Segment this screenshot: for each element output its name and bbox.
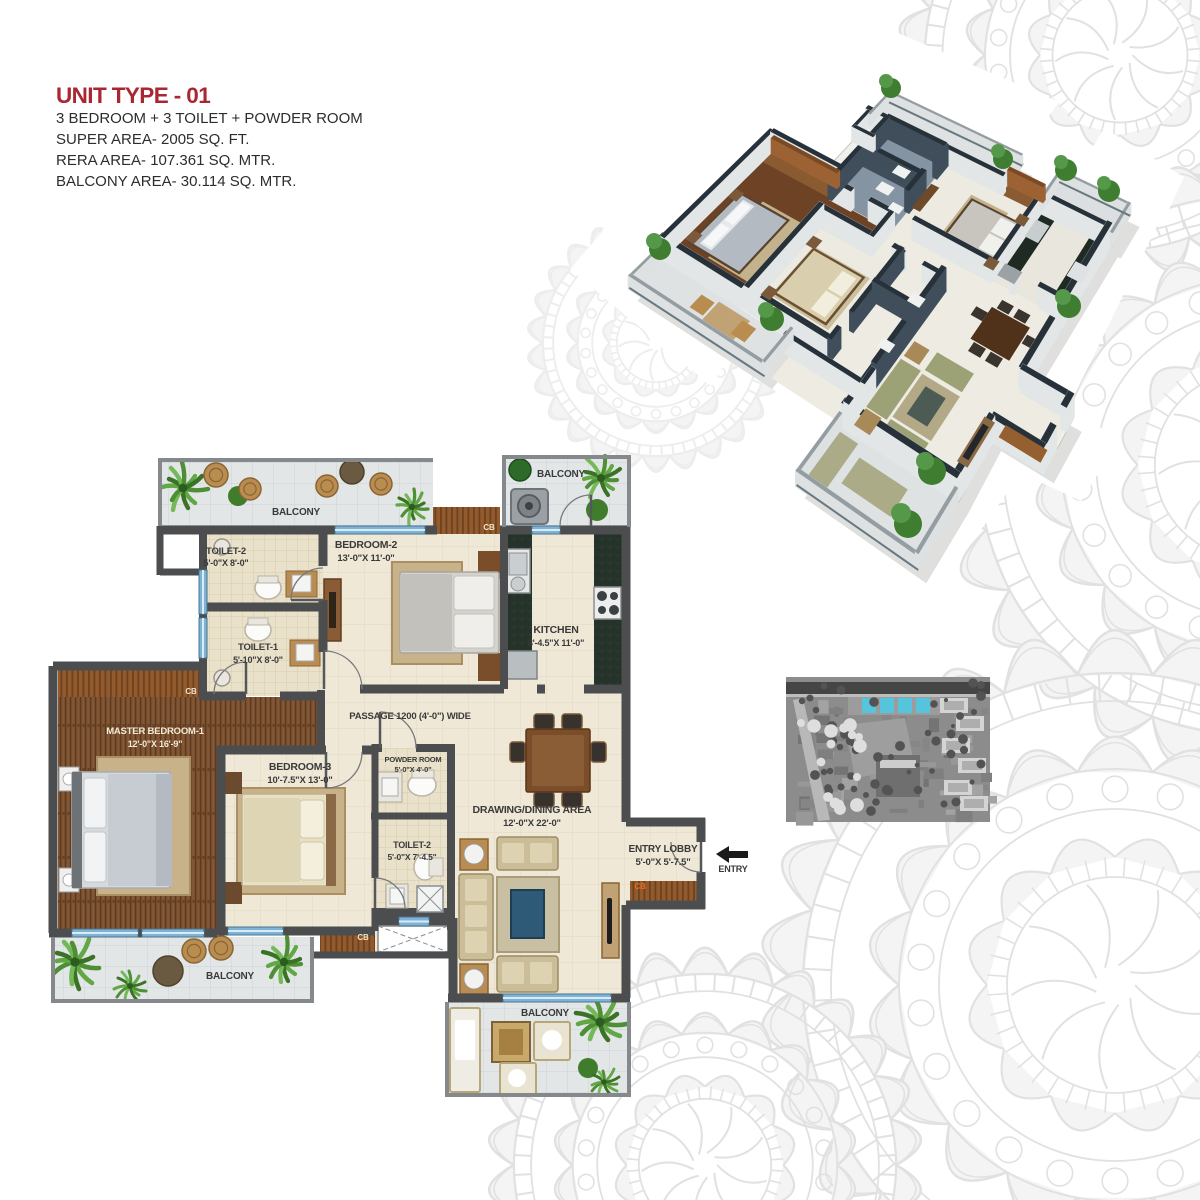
svg-text:CB: CB	[357, 933, 369, 942]
svg-text:CB: CB	[634, 882, 646, 891]
svg-text:5'-0"X 8'-0": 5'-0"X 8'-0"	[204, 558, 249, 568]
svg-text:TOILET-1: TOILET-1	[238, 642, 279, 653]
svg-text:5'-10"X 8'-0": 5'-10"X 8'-0"	[233, 655, 283, 665]
svg-text:10'-7.5"X 13'-0": 10'-7.5"X 13'-0"	[267, 775, 332, 786]
svg-text:CB: CB	[483, 523, 495, 532]
svg-text:12'-0"X 16'-9": 12'-0"X 16'-9"	[128, 739, 183, 749]
svg-text:8'-4.5"X 11'-0": 8'-4.5"X 11'-0"	[528, 638, 584, 648]
svg-text:BALCONY: BALCONY	[272, 507, 321, 518]
svg-text:SUPER AREA- 2005 SQ. FT.: SUPER AREA- 2005 SQ. FT.	[56, 131, 249, 148]
svg-text:5'-0"X 5'-7.5": 5'-0"X 5'-7.5"	[635, 857, 690, 868]
svg-text:RERA AREA- 107.361 SQ. MTR.: RERA AREA- 107.361 SQ. MTR.	[56, 152, 275, 169]
svg-text:KITCHEN: KITCHEN	[533, 624, 578, 636]
svg-text:CB: CB	[185, 687, 197, 696]
svg-text:UNIT TYPE - 01: UNIT TYPE - 01	[56, 83, 210, 108]
svg-text:BEDROOM-3: BEDROOM-3	[269, 761, 332, 773]
svg-text:PASSAGE 1200 (4'-0") WIDE: PASSAGE 1200 (4'-0") WIDE	[349, 711, 470, 722]
svg-text:POWDER ROOM: POWDER ROOM	[385, 755, 442, 764]
svg-text:5'-0"X 4'-0": 5'-0"X 4'-0"	[394, 765, 432, 774]
svg-text:TOILET-2: TOILET-2	[206, 546, 246, 557]
svg-text:BALCONY: BALCONY	[206, 971, 255, 982]
svg-text:BALCONY: BALCONY	[521, 1008, 570, 1019]
svg-text:ENTRY: ENTRY	[718, 864, 747, 874]
svg-text:ENTRY LOBBY: ENTRY LOBBY	[629, 844, 698, 855]
svg-text:12'-0"X 22'-0": 12'-0"X 22'-0"	[503, 818, 561, 829]
svg-text:13'-0"X 11'-0": 13'-0"X 11'-0"	[337, 553, 394, 564]
svg-text:BALCONY: BALCONY	[537, 469, 586, 480]
svg-text:BEDROOM-2: BEDROOM-2	[335, 539, 398, 551]
svg-text:DRAWING/DINING AREA: DRAWING/DINING AREA	[473, 804, 593, 816]
svg-text:BALCONY AREA- 30.114 SQ. MTR.: BALCONY AREA- 30.114 SQ. MTR.	[56, 173, 296, 190]
svg-text:MASTER BEDROOM-1: MASTER BEDROOM-1	[106, 726, 205, 737]
svg-text:3 BEDROOM + 3 TOILET + POWDER: 3 BEDROOM + 3 TOILET + POWDER ROOM	[56, 110, 363, 127]
svg-text:5'-0"X 7'-4.5": 5'-0"X 7'-4.5"	[388, 852, 437, 862]
svg-text:TOILET-2: TOILET-2	[393, 840, 431, 850]
